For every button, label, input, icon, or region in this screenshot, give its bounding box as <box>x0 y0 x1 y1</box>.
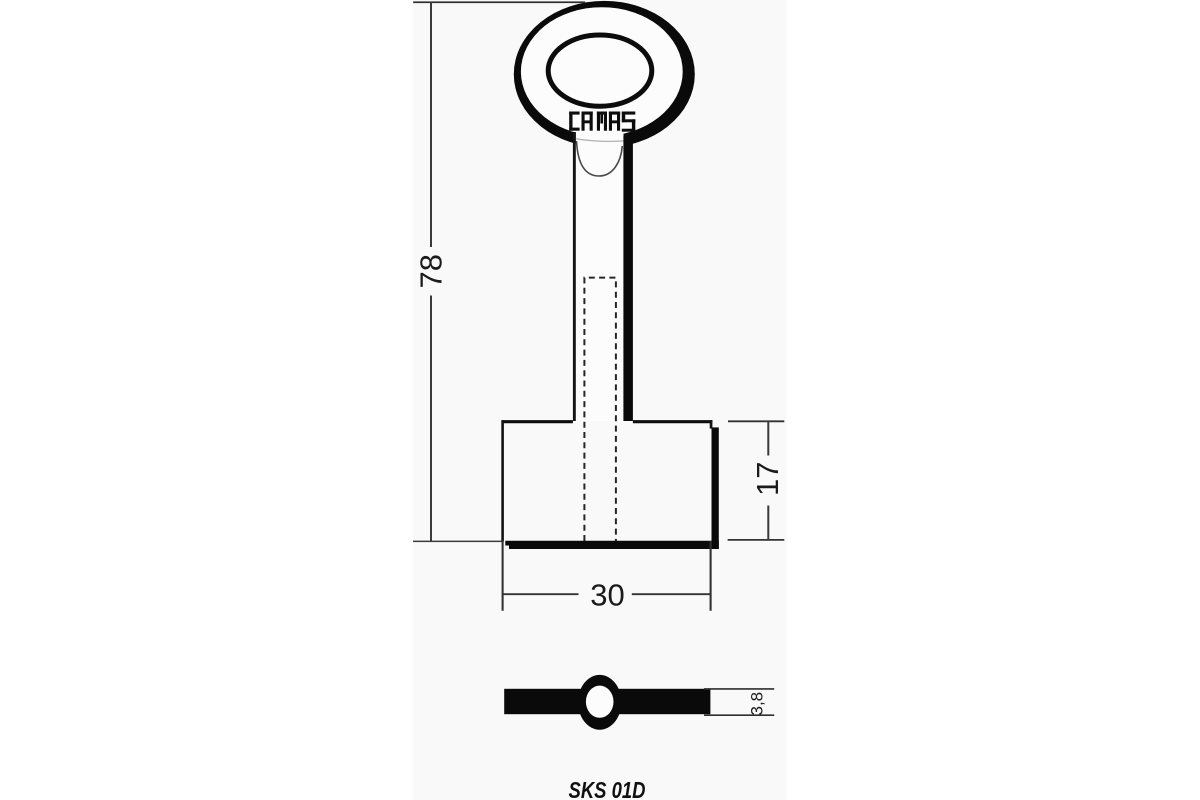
svg-text:30: 30 <box>590 578 624 613</box>
svg-text:78: 78 <box>413 254 448 288</box>
svg-text:3,8: 3,8 <box>748 692 767 716</box>
svg-text:17: 17 <box>750 462 785 496</box>
svg-text:SKS 01D: SKS 01D <box>569 777 646 800</box>
